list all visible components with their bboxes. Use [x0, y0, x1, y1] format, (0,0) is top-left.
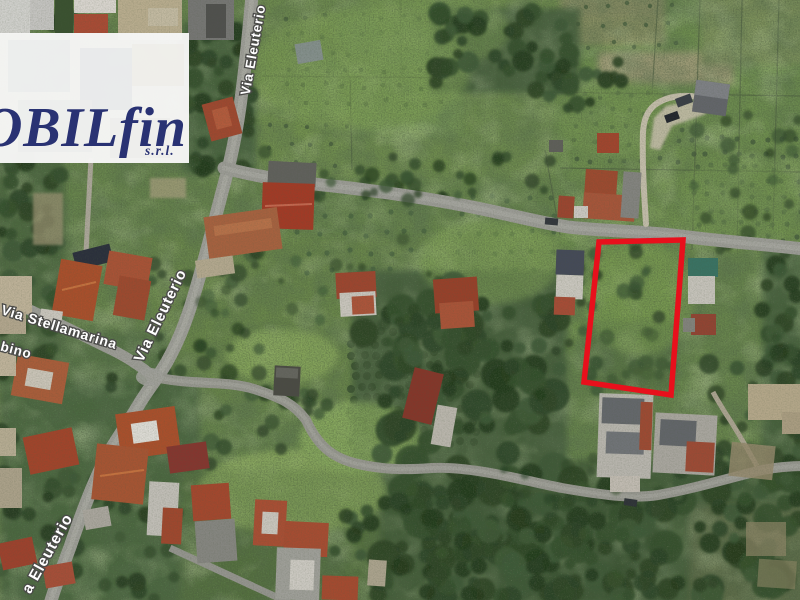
svg-text:s.r.l.: s.r.l. [144, 143, 175, 158]
